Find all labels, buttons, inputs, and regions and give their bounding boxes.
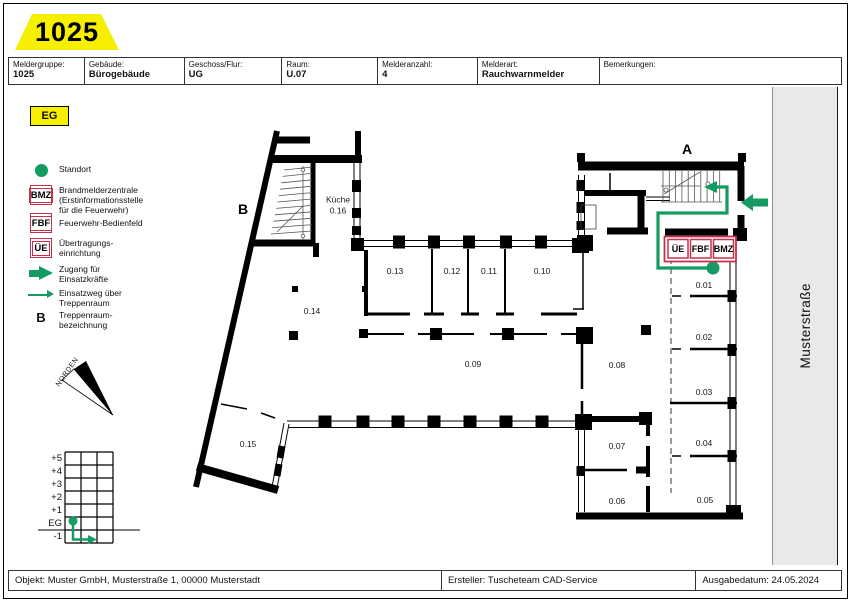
room-label-0-03: 0.03	[696, 387, 713, 398]
room-label-0-06: 0.06	[609, 496, 626, 507]
room-label-0-05: 0.05	[697, 495, 714, 506]
footer-ausgabedatum: Ausgabedatum: 24.05.2024	[696, 571, 841, 590]
level-label-p1: +1	[30, 505, 62, 516]
bmz-panel-label: BMZ	[714, 244, 734, 254]
room-label-0-15: 0.15	[240, 439, 257, 450]
footer-ersteller: Ersteller: Tuscheteam CAD-Service	[442, 571, 696, 590]
footer-objekt: Objekt: Muster GmbH, Musterstraße 1, 000…	[9, 571, 442, 590]
room-label-0-12: 0.12	[444, 266, 461, 277]
fbf-panel-label: FBF	[692, 244, 710, 254]
room-label-0-13: 0.13	[387, 266, 404, 277]
room-label-0-11: 0.11	[481, 266, 497, 277]
detector-location-dot	[707, 262, 720, 275]
room-label-0-07: 0.07	[609, 441, 626, 452]
kitchen-window-wall	[351, 163, 364, 251]
room-label-0-10: 0.10	[534, 266, 551, 277]
south-facade	[287, 414, 592, 430]
room-label-0-01: 0.01	[696, 280, 713, 291]
room-label-0-02: 0.02	[696, 332, 713, 343]
stairwell-a-label: A	[682, 141, 692, 157]
north-facade	[362, 235, 593, 251]
level-label-p3: +3	[30, 479, 62, 490]
stairwell-b-stairs	[271, 166, 312, 240]
office-partitions-north	[362, 249, 577, 316]
room-label-0-14: 0.14	[304, 306, 321, 317]
level-label-p2: +2	[30, 492, 62, 503]
floor-plan-drawing	[0, 0, 850, 601]
level-label-p5: +5	[30, 453, 62, 464]
southeast-wing-walls	[576, 412, 743, 516]
footer-table: Objekt: Muster GmbH, Musterstraße 1, 000…	[8, 570, 842, 591]
stairwell-b-walls	[196, 131, 362, 487]
stairwell-b-label: B	[238, 201, 248, 217]
room-label-0-04: 0.04	[696, 438, 713, 449]
corridor-wall	[359, 327, 593, 344]
ue-panel-label: ÜE	[672, 244, 685, 254]
access-entry-arrow	[741, 194, 768, 211]
mid-walls	[289, 258, 671, 493]
laufkarte-page: 1025 Meldergruppe: 1025 Gebäude: Bürogeb…	[0, 0, 850, 601]
room-label-0-09: 0.09	[465, 359, 482, 370]
room-label-0-08: 0.08	[609, 360, 626, 371]
level-label-p4: +4	[30, 466, 62, 477]
room-label-kueche: Küche 0.16	[326, 195, 350, 216]
level-label-m1: -1	[30, 531, 62, 542]
level-label-eg: EG	[30, 518, 62, 529]
